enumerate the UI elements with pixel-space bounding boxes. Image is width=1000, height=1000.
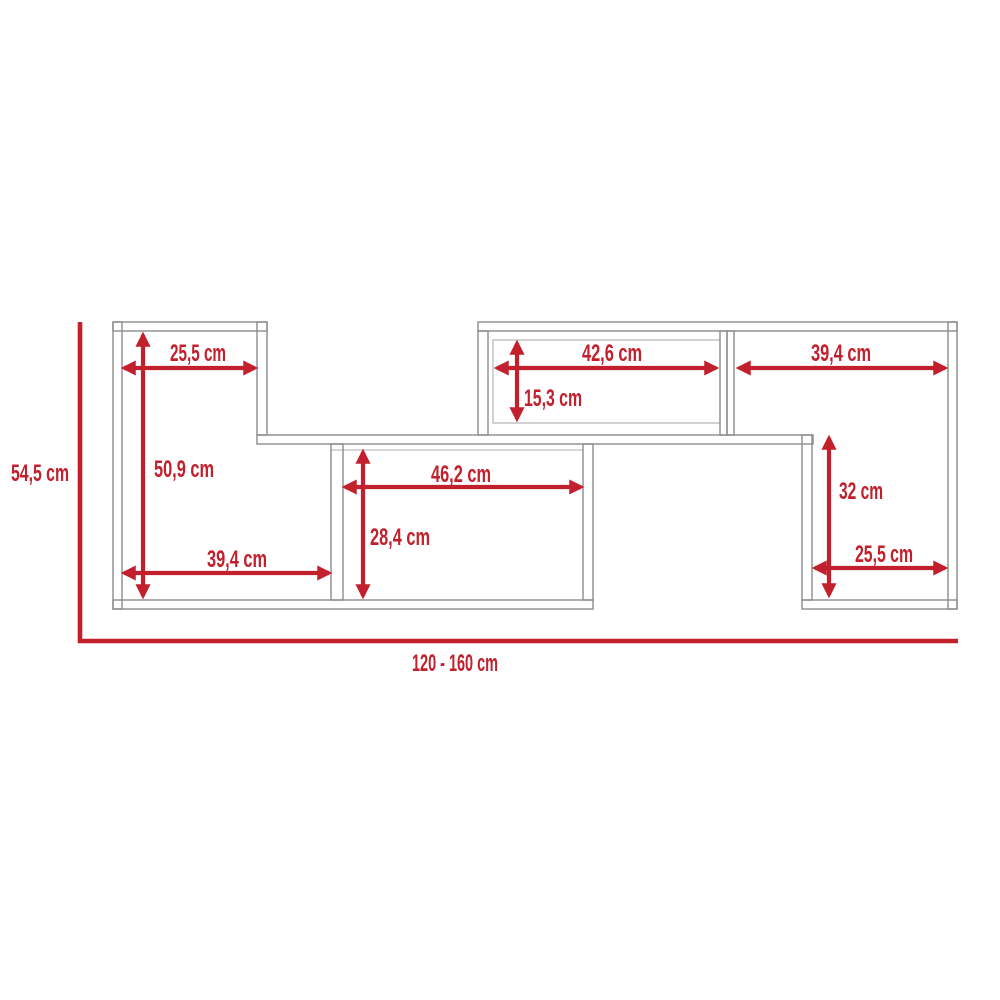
- dim-label-top-middle-height: 15,3 cm: [524, 385, 582, 412]
- panel-center-divider: [331, 444, 343, 600]
- panel-left-right-wall: [257, 322, 267, 435]
- dim-label-bottom-right-width: 25,5 cm: [855, 541, 913, 568]
- panel-middle-shelf: [257, 435, 813, 444]
- panel-top-divider-1: [720, 331, 727, 435]
- panel-lower-right-left-wall: [802, 435, 812, 600]
- dimension-diagram: 54,5 cm 120 - 160 cm 25,5 cm 50,9 cm 39,…: [0, 0, 1000, 1000]
- overall-dimension-bracket: 54,5 cm 120 - 160 cm: [11, 322, 958, 677]
- dim-label-top-right-width: 39,4 cm: [811, 340, 871, 367]
- dim-label-center-height: 28,4 cm: [370, 524, 430, 551]
- dim-label-top-middle-width: 42,6 cm: [582, 340, 642, 367]
- panel-right-wall: [948, 322, 957, 609]
- panel-top-divider-2: [727, 331, 734, 435]
- dimension-annotations: 25,5 cm 50,9 cm 39,4 cm 46,2 cm 28,4 cm …: [124, 335, 945, 596]
- dim-label-bottom-left-width: 39,4 cm: [207, 546, 267, 573]
- panel-top-left-wall: [478, 331, 488, 435]
- panel-center-right-wall: [583, 444, 593, 600]
- panel-bottom-right-band: [802, 600, 957, 609]
- panel-top-band: [478, 322, 957, 331]
- dim-label-top-left-width: 25,5 cm: [170, 340, 226, 367]
- dim-label-right-height: 32 cm: [839, 478, 883, 505]
- overall-height-label: 54,5 cm: [11, 460, 69, 487]
- dim-label-center-width: 46,2 cm: [431, 461, 491, 488]
- dim-label-left-height: 50,9 cm: [154, 456, 214, 483]
- overall-width-label: 120 - 160 cm: [412, 650, 498, 677]
- panel-bottom-left-band: [113, 600, 593, 609]
- panel-left-top: [113, 322, 267, 331]
- diagram-canvas: 54,5 cm 120 - 160 cm 25,5 cm 50,9 cm 39,…: [0, 0, 1000, 1000]
- panel-left-wall: [113, 322, 122, 609]
